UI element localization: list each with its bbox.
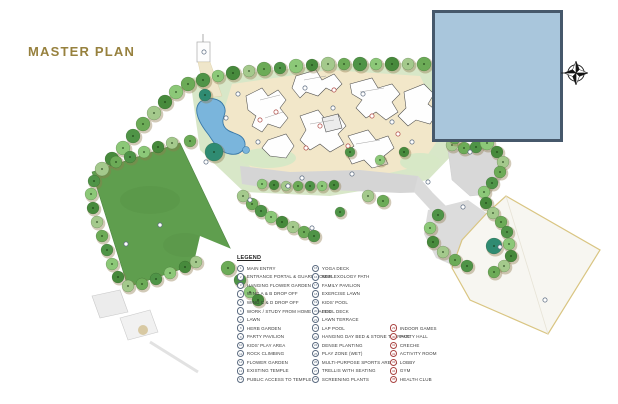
legend-item-number: 22 xyxy=(312,324,319,331)
legend-item-label: FLOWER GARDEN xyxy=(247,360,288,365)
plan-marker xyxy=(224,116,228,120)
legend-item: 26MULTI-PURPOSE SPORTS ARENA xyxy=(312,358,390,367)
masked-region-overlay xyxy=(432,10,563,142)
plan-marker xyxy=(304,146,308,150)
legend-item-label: MULTI-PURPOSE SPORTS ARENA xyxy=(322,360,397,365)
legend-item: 28SCREENING PLANTS xyxy=(312,375,390,384)
plan-marker xyxy=(258,118,262,122)
legend-item-label: GYM xyxy=(400,368,411,373)
legend-item-number: 14 xyxy=(237,376,244,383)
legend-item-label: LOBBY xyxy=(400,360,416,365)
legend-item-label: LAWN xyxy=(247,317,260,322)
legend-item: 23HANGING DAY BED & STONE TERRACE xyxy=(312,332,390,341)
legend-item: 15YOGA DECK xyxy=(312,264,390,273)
legend-item: 31CRECHE xyxy=(390,341,460,350)
legend-column-2: 15YOGA DECK16REFLEXOLOGY PATH17FAMILY PA… xyxy=(312,264,390,384)
plan-marker xyxy=(331,106,335,110)
legend-item: 5WING C & D DROP OFF xyxy=(237,298,312,307)
legend-item-label: HEALTH CLUB xyxy=(400,377,432,382)
legend-item-label: HANGING FLOWER GARDEN xyxy=(247,283,311,288)
plan-marker xyxy=(461,205,465,209)
legend-item: 6WORK / STUDY FROM HOME SPACES xyxy=(237,307,312,316)
plan-marker xyxy=(396,132,400,136)
legend-item-number: 16 xyxy=(312,273,319,280)
legend-item: 35HEALTH CLUB xyxy=(390,375,460,384)
legend-item-number: 17 xyxy=(312,282,319,289)
legend-item-label: PARTY HALL xyxy=(400,334,428,339)
legend-item: 4WING A & B DROP OFF xyxy=(237,290,312,299)
legend-item-label: POOL DECK xyxy=(322,309,349,314)
legend-item-label: PLAY ZONE (WET) xyxy=(322,351,363,356)
legend-item: 10KIDS' PLAY AREA xyxy=(237,341,312,350)
legend-column-1: 1MAIN ENTRY2ENTRANCE PORTAL & GUARD HOUS… xyxy=(237,264,312,384)
plan-marker xyxy=(410,140,414,144)
legend-item-label: KIDS' PLAY AREA xyxy=(247,343,285,348)
legend-item: 11ROCK CLIMBING xyxy=(237,349,312,358)
plan-marker xyxy=(286,184,290,188)
temple-court xyxy=(138,325,148,335)
legend-item-label: REFLEXOLOGY PATH xyxy=(322,274,370,279)
kids-pool xyxy=(243,147,250,154)
page-title: MASTER PLAN xyxy=(28,44,135,59)
plan-marker xyxy=(318,124,322,128)
legend-item-number: 30 xyxy=(390,333,397,340)
wing-e xyxy=(300,110,346,152)
plan-marker xyxy=(390,120,394,124)
legend-item: 29INDOOR GAMES xyxy=(390,324,460,333)
wing-a xyxy=(246,88,288,132)
public-access-path xyxy=(150,342,198,372)
legend-item-label: KIDS' POOL xyxy=(322,300,348,305)
legend-item-number: 5 xyxy=(237,299,244,306)
legend-item-number: 28 xyxy=(312,376,319,383)
legend-item-label: PUBLIC ACCESS TO TEMPLE xyxy=(247,377,312,382)
legend-columns: 1MAIN ENTRY2ENTRANCE PORTAL & GUARD HOUS… xyxy=(237,264,460,384)
legend-item-label: PARTY PAVILION xyxy=(247,334,284,339)
legend-item-number: 20 xyxy=(312,307,319,314)
legend-item: 13EXISTING TEMPLE xyxy=(237,367,312,376)
legend-item: 34GYM xyxy=(390,367,460,376)
legend-item-number: 7 xyxy=(237,316,244,323)
legend: LEGEND 1MAIN ENTRY2ENTRANCE PORTAL & GUA… xyxy=(237,255,460,384)
legend-item-label: SCREENING PLANTS xyxy=(322,377,369,382)
legend-item: 7LAWN xyxy=(237,315,312,324)
legend-item-number: 29 xyxy=(390,324,397,331)
legend-item: 19KIDS' POOL xyxy=(312,298,390,307)
north-arrow-icon xyxy=(561,58,591,88)
plan-marker xyxy=(310,226,314,230)
legend-item-number: 27 xyxy=(312,367,319,374)
plan-marker xyxy=(274,110,278,114)
legend-item-number: 21 xyxy=(312,316,319,323)
legend-item-label: DENSE PLANTING xyxy=(322,343,363,348)
plan-marker xyxy=(248,198,252,202)
plan-marker xyxy=(124,242,128,246)
legend-item: 24DENSE PLANTING xyxy=(312,341,390,350)
legend-item: 20POOL DECK xyxy=(312,307,390,316)
legend-item: 8HERB GARDEN xyxy=(237,324,312,333)
plan-marker xyxy=(332,88,336,92)
legend-item-number: 12 xyxy=(237,359,244,366)
legend-item-label: EXERCISE LAWN xyxy=(322,291,360,296)
legend-item-number: 3 xyxy=(237,282,244,289)
legend-item-number: 24 xyxy=(312,342,319,349)
legend-item-label: HERB GARDEN xyxy=(247,326,281,331)
legend-item: 27TRELLIS WITH SEATING xyxy=(312,367,390,376)
legend-item: 25PLAY ZONE (WET) xyxy=(312,349,390,358)
legend-item: 1MAIN ENTRY xyxy=(237,264,312,273)
plan-marker xyxy=(236,92,240,96)
plan-marker xyxy=(303,86,307,90)
legend-item-label: LAP POOL xyxy=(322,326,345,331)
legend-item-number: 33 xyxy=(390,359,397,366)
plan-marker xyxy=(256,140,260,144)
legend-item-number: 32 xyxy=(390,350,397,357)
plan-marker xyxy=(350,172,354,176)
legend-item: 22LAP POOL xyxy=(312,324,390,333)
legend-item: 30PARTY HALL xyxy=(390,332,460,341)
plan-marker xyxy=(346,144,350,148)
legend-item-label: YOGA DECK xyxy=(322,266,349,271)
legend-item-number: 13 xyxy=(237,367,244,374)
legend-item-number: 10 xyxy=(237,342,244,349)
legend-item: 17FAMILY PAVILION xyxy=(312,281,390,290)
legend-item-number: 11 xyxy=(237,350,244,357)
plan-marker xyxy=(543,298,547,302)
existing-temple xyxy=(92,290,128,318)
legend-item: 12FLOWER GARDEN xyxy=(237,358,312,367)
legend-item-number: 8 xyxy=(237,324,244,331)
legend-item-number: 25 xyxy=(312,350,319,357)
plan-marker xyxy=(204,160,208,164)
legend-item-label: WING A & B DROP OFF xyxy=(247,291,298,296)
legend-item-label: MAIN ENTRY xyxy=(247,266,276,271)
legend-item: 3HANGING FLOWER GARDEN xyxy=(237,281,312,290)
legend-item-label: ROCK CLIMBING xyxy=(247,351,284,356)
legend-item: 2ENTRANCE PORTAL & GUARD HOUSE xyxy=(237,273,312,282)
plan-marker xyxy=(468,150,472,154)
plan-marker xyxy=(498,245,502,249)
legend-item: 16REFLEXOLOGY PATH xyxy=(312,273,390,282)
legend-item: 9PARTY PAVILION xyxy=(237,332,312,341)
legend-item-number: 23 xyxy=(312,333,319,340)
legend-item-number: 1 xyxy=(237,265,244,272)
legend-item-label: TRELLIS WITH SEATING xyxy=(322,368,376,373)
legend-item-number: 35 xyxy=(390,376,397,383)
legend-item-number: 34 xyxy=(390,367,397,374)
legend-item-number: 26 xyxy=(312,359,319,366)
legend-item: 18EXERCISE LAWN xyxy=(312,290,390,299)
legend-item-label: WING C & D DROP OFF xyxy=(247,300,299,305)
legend-item-number: 4 xyxy=(237,290,244,297)
legend-item: 14PUBLIC ACCESS TO TEMPLE xyxy=(237,375,312,384)
legend-item-label: ACTIVITY ROOM xyxy=(400,351,437,356)
temple-structure xyxy=(120,310,158,340)
legend-item-label: INDOOR GAMES xyxy=(400,326,437,331)
legend-item-label: CRECHE xyxy=(400,343,420,348)
legend-item-number: 19 xyxy=(312,299,319,306)
legend-item-label: EXISTING TEMPLE xyxy=(247,368,289,373)
legend-item-number: 15 xyxy=(312,265,319,272)
legend-item-number: 18 xyxy=(312,290,319,297)
plan-marker xyxy=(426,180,430,184)
legend-item-number: 6 xyxy=(237,307,244,314)
legend-item-label: FAMILY PAVILION xyxy=(322,283,360,288)
legend-item-number: 31 xyxy=(390,342,397,349)
legend-item-number: 9 xyxy=(237,333,244,340)
legend-item: 32ACTIVITY ROOM xyxy=(390,349,460,358)
legend-header: LEGEND xyxy=(237,255,460,261)
legend-item: 33LOBBY xyxy=(390,358,460,367)
plan-marker xyxy=(370,114,374,118)
plan-marker xyxy=(361,92,365,96)
plan-marker xyxy=(300,176,304,180)
lawn-texture xyxy=(120,186,180,214)
legend-item: 21LAWN TERRACE xyxy=(312,315,390,324)
legend-column-3: 29INDOOR GAMES30PARTY HALL31CRECHE32ACTI… xyxy=(390,264,460,384)
plan-marker xyxy=(158,223,162,227)
plan-marker xyxy=(202,50,206,54)
legend-item-label: LAWN TERRACE xyxy=(322,317,359,322)
legend-item-number: 2 xyxy=(237,273,244,280)
master-plan-page: MASTER PLAN LEGEND 1MAIN ENTRY2ENTRANCE … xyxy=(0,0,618,404)
